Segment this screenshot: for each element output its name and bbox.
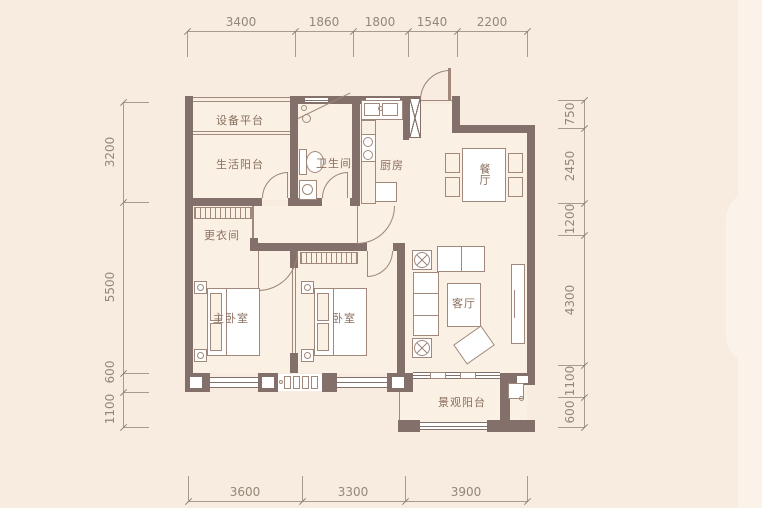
dim-ext <box>187 31 188 57</box>
dim-line-right <box>584 100 585 427</box>
dim-ext <box>295 31 296 57</box>
wall-balcony-bottom-left <box>398 420 420 432</box>
sink-basin-icon <box>302 184 313 195</box>
room-label-dining: 餐厅 <box>476 163 492 185</box>
radiator-fin2 <box>293 376 300 389</box>
wardrobe-dressing <box>194 207 252 219</box>
radiator-fin4 <box>311 376 318 389</box>
master-lamp-bottom-icon <box>197 352 204 359</box>
wall-hall-top-a <box>185 198 262 206</box>
bg-light-bulge <box>726 190 762 365</box>
dim-ext <box>123 202 149 203</box>
wall-bath-kitchen <box>352 96 360 206</box>
dining-chair2 <box>445 177 460 197</box>
sofa-top-divider <box>461 246 462 272</box>
dim-top-2: 1860 <box>309 15 340 29</box>
shower-head-icon <box>301 105 307 111</box>
dim-tick <box>581 424 588 431</box>
sliding-door-living-balcony <box>413 372 500 379</box>
wall-right <box>527 125 535 380</box>
dim-left-2: 5500 <box>103 272 117 303</box>
entry-threshold <box>421 100 452 101</box>
room-label-master-bedroom: 主卧室 <box>213 310 249 326</box>
dim-line-left <box>123 102 124 427</box>
dim-top-4: 1540 <box>417 15 448 29</box>
balcony-left-rail <box>399 392 400 420</box>
divider-platform-2 <box>193 134 290 135</box>
rail-equipment-top-1 <box>193 97 290 98</box>
dim-bottom-1: 3600 <box>230 485 261 499</box>
dim-right-5: 1100 <box>563 366 577 397</box>
dining-chair1 <box>445 153 460 173</box>
dim-ext <box>302 476 303 502</box>
dim-ext <box>123 427 149 428</box>
bedroom2-lamp-top-icon <box>304 284 311 291</box>
master-lamp-top-icon <box>197 284 204 291</box>
dim-ext <box>408 31 409 57</box>
partition-bedrooms-line2 <box>295 268 296 353</box>
flue-shaft-icon <box>409 98 421 138</box>
column-inset1 <box>190 377 202 388</box>
kitchen-sink-basin2 <box>382 103 398 116</box>
room-label-living-room: 客厅 <box>452 295 476 311</box>
dim-ext <box>123 373 149 374</box>
wall-top-right <box>452 125 535 133</box>
dim-ext <box>123 392 149 393</box>
dining-chair3 <box>508 153 523 173</box>
dim-ext <box>457 31 458 57</box>
column-inset4 <box>517 376 528 383</box>
dim-ext <box>558 235 584 236</box>
column-inset3 <box>392 377 404 388</box>
wall-dressing-corner <box>250 238 258 251</box>
dim-top-1: 3400 <box>226 15 257 29</box>
floorplan-canvas: 设备平台 生活阳台 卫生间 厨房 餐厅 更衣间 主卧室 卧室 客厅 景观阳台 3… <box>0 0 762 514</box>
window-bedroom-bottom <box>337 377 387 388</box>
dim-ext <box>558 100 584 101</box>
dim-ext <box>558 397 584 398</box>
dim-ext <box>527 476 528 502</box>
dim-right-1: 750 <box>563 103 577 126</box>
dim-right-3: 1200 <box>563 204 577 235</box>
dim-ext <box>188 476 189 502</box>
dim-left-3: 600 <box>103 361 117 384</box>
dim-left-4: 1100 <box>103 394 117 425</box>
wall-bedroom2-right <box>397 243 405 373</box>
lamp-top-icon <box>414 252 430 268</box>
room-label-bedroom: 卧室 <box>332 310 356 326</box>
master-pillow2 <box>210 323 222 351</box>
window-master-bottom <box>210 377 258 388</box>
bedroom2-pillow1 <box>317 293 329 321</box>
sofa-left-divider2 <box>413 315 439 316</box>
wardrobe-bedroom2 <box>300 252 358 264</box>
kitchen-faucet-icon <box>378 106 383 111</box>
sofa-left-section <box>413 272 439 336</box>
dim-ext <box>405 476 406 502</box>
dim-left-1: 3200 <box>103 137 117 168</box>
dining-chair4 <box>508 177 523 197</box>
kitchen-counter-left <box>361 120 376 204</box>
dim-top-3: 1800 <box>365 15 396 29</box>
sliding-door-panel2 <box>460 372 476 379</box>
sliding-door-panel1 <box>430 372 446 379</box>
wall-bedroom-top-a <box>258 243 367 251</box>
wall-balcony-bath <box>290 96 298 206</box>
partition-bedrooms-bottom <box>290 353 298 373</box>
bedroom2-lamp-bottom-icon <box>304 352 311 359</box>
room-label-view-balcony: 景观阳台 <box>438 394 486 410</box>
radiator-fin3 <box>302 376 309 389</box>
room-label-kitchen: 厨房 <box>380 157 404 173</box>
wall-bottom-block3 <box>322 373 337 392</box>
radiator-fin1 <box>284 376 291 389</box>
stove-burner1-icon <box>363 137 373 147</box>
dim-ext <box>353 31 354 57</box>
sofa-left-divider1 <box>413 293 439 294</box>
dim-ext <box>123 102 149 103</box>
dim-ext <box>558 427 584 428</box>
dim-line-bottom <box>188 501 527 502</box>
stove-burner2-icon <box>363 150 373 160</box>
dim-ext <box>558 128 584 129</box>
wall-balcony-bottom-right <box>487 420 535 432</box>
bedroom2-pillow2 <box>317 323 329 351</box>
bg-bottom-strip <box>0 508 762 514</box>
dim-tick <box>524 498 531 505</box>
room-label-bathroom: 卫生间 <box>316 155 352 171</box>
dim-top-5: 2200 <box>477 15 508 29</box>
lamp-bottom-icon <box>414 340 430 356</box>
tv-cabinet-handle <box>514 290 515 318</box>
entry-door-arc <box>420 70 450 100</box>
room-label-dressing-room: 更衣间 <box>204 227 240 243</box>
divider-platform-1 <box>193 131 290 132</box>
radiator-valve-icon <box>279 380 283 384</box>
window-balcony-bottom <box>420 422 487 430</box>
room-label-service-balcony: 生活阳台 <box>216 156 264 172</box>
rail-equipment-top-2 <box>193 101 290 102</box>
dim-bottom-3: 3900 <box>451 485 482 499</box>
room-label-equipment-platform: 设备平台 <box>216 112 264 128</box>
wall-hall-top-c <box>350 198 360 206</box>
dim-ext <box>527 31 528 57</box>
dim-right-2: 2450 <box>563 151 577 182</box>
kitchen-fridge <box>375 182 397 202</box>
dim-bottom-2: 3300 <box>338 485 369 499</box>
wall-left <box>185 96 193 392</box>
window-bathroom-top <box>305 97 328 103</box>
water-heater-valve-icon <box>519 396 524 401</box>
column-inset2 <box>262 377 274 388</box>
dim-right-4: 4300 <box>563 285 577 316</box>
dim-right-6: 600 <box>563 401 577 424</box>
dim-line-top <box>187 31 527 32</box>
partition-bedrooms-line1 <box>292 268 293 353</box>
